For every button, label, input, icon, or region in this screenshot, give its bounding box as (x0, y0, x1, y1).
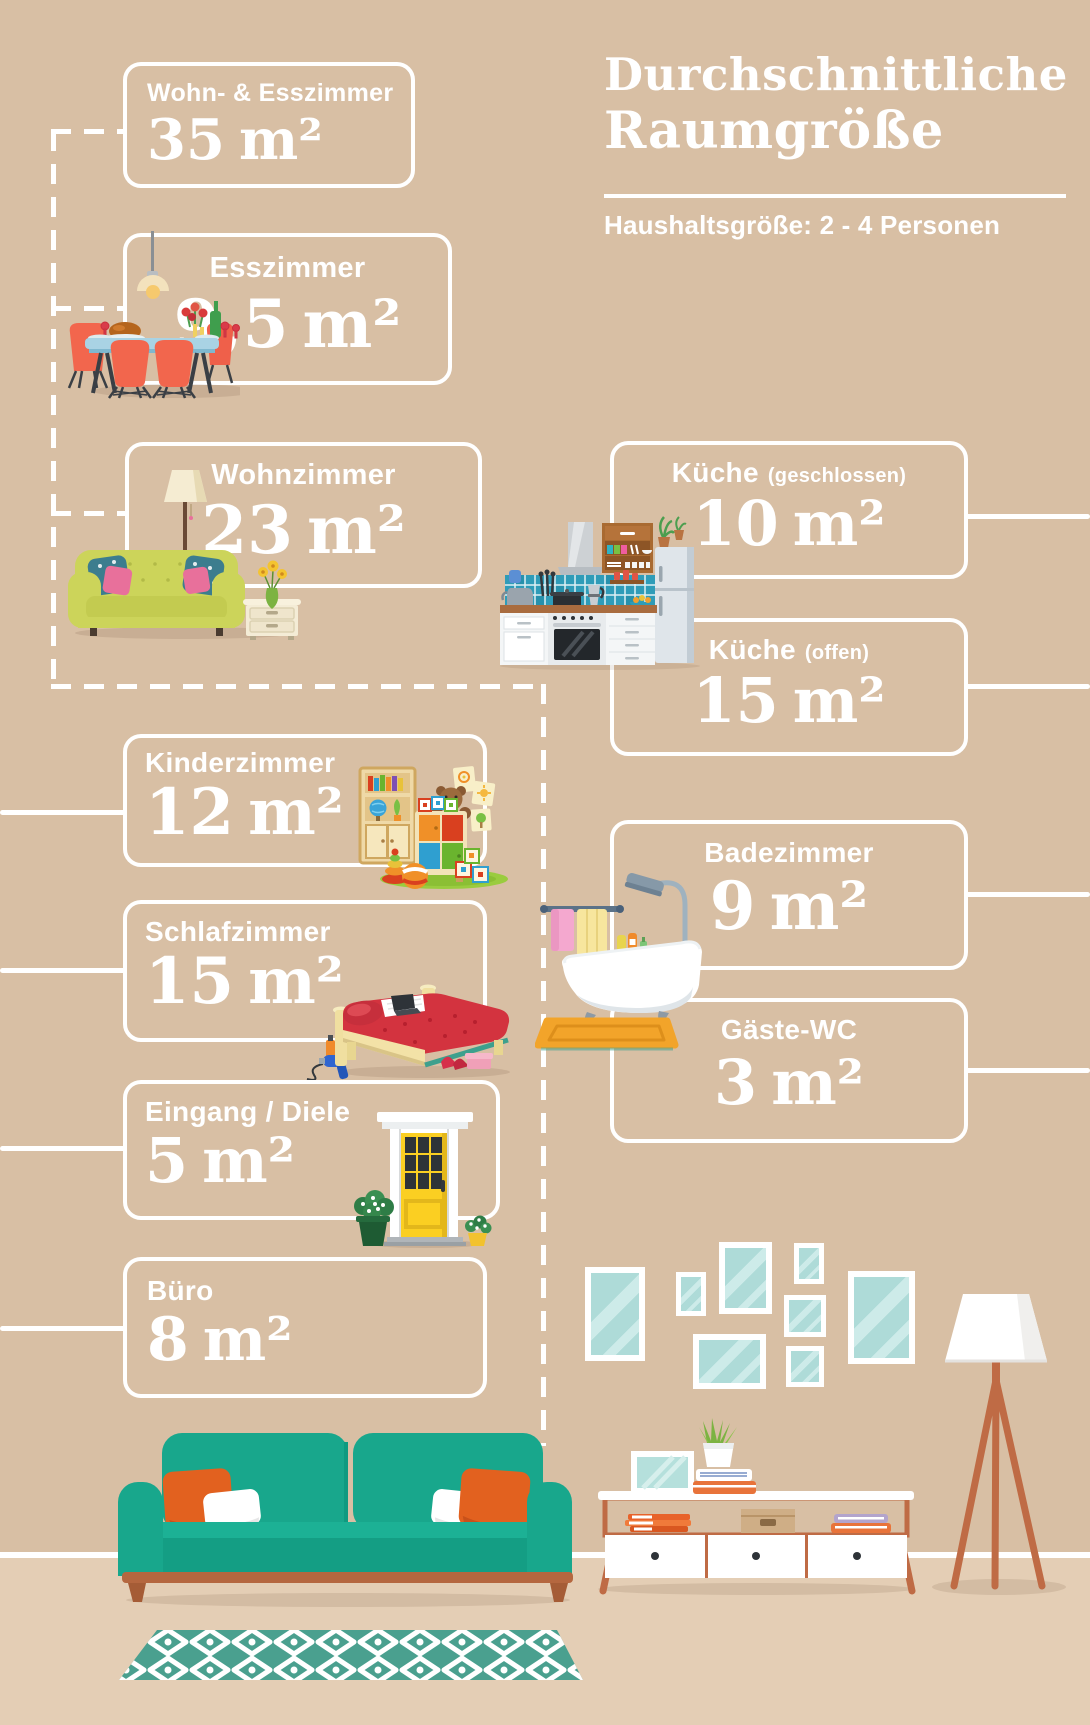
entrance-door-illustration (345, 1108, 495, 1248)
page-title-line2: Raumgröße (604, 102, 1066, 160)
towel-pink (551, 909, 574, 951)
console-picture-frame (631, 1451, 694, 1494)
connector-schlafzimmer (0, 968, 127, 973)
stacked-books (693, 1469, 756, 1494)
flower-pot-right (465, 1216, 492, 1247)
teal-sofa-illustration (110, 1430, 580, 1608)
picture-frame (784, 1295, 826, 1337)
toy-ball (402, 863, 428, 889)
connector-kinderzimmer (0, 810, 127, 815)
picture-frame (719, 1242, 772, 1314)
dashed-connector-wohn (51, 129, 127, 134)
picture-frame (848, 1271, 915, 1364)
kitchen-illustration (495, 510, 705, 670)
shelf-books-left (625, 1514, 691, 1532)
room-label: Küche(geschlossen) (614, 457, 964, 489)
dashed-wall-left (51, 131, 56, 688)
potted-grass (699, 1418, 737, 1467)
title-underline (604, 194, 1066, 198)
bath-mat (538, 1021, 675, 1049)
header: Durchschnittliche Raumgröße Haushaltsgrö… (604, 48, 1066, 241)
plants-on-fridge (658, 517, 686, 548)
room-size-value: 35m² (147, 111, 411, 170)
picture-frame (676, 1272, 706, 1316)
kids-room-illustration (325, 755, 510, 895)
spray-bottle (326, 1035, 335, 1058)
shelf-box (741, 1509, 795, 1533)
connector-buero (0, 1326, 127, 1331)
connector-badezimmer (964, 892, 1090, 897)
subtitle-household-size: Haushaltsgröße: 2 - 4 Personen (604, 210, 1066, 241)
room-label: Büro (147, 1275, 483, 1307)
fridge (655, 547, 694, 663)
shower-head (624, 872, 665, 897)
dining-table-illustration (55, 225, 240, 400)
picture-frame (693, 1334, 766, 1389)
letter-blocks-top (419, 797, 457, 811)
bathroom-illustration (535, 865, 805, 1055)
picture-frame (786, 1346, 824, 1387)
rug-illustration (105, 1628, 590, 1683)
room-size-value: 15m² (614, 668, 964, 733)
bed-illustration (295, 980, 515, 1080)
shoe-box (465, 1053, 493, 1069)
tripod-floor-lamp-illustration (925, 1288, 1075, 1598)
room-label: Wohn- & Esszimmer (147, 79, 411, 108)
room-box-buero: Büro 8m² (123, 1257, 487, 1398)
living-sofa-illustration (60, 460, 305, 640)
page-title-line1: Durchschnittliche (604, 48, 1066, 102)
connector-kueche-geschlossen (964, 514, 1090, 519)
infographic-room-sizes: Durchschnittliche Raumgröße Haushaltsgrö… (0, 0, 1090, 1725)
towel-yellow (577, 909, 607, 957)
picture-frame (585, 1267, 645, 1361)
connector-gaeste-wc (964, 1068, 1090, 1073)
shelf-books-right (831, 1514, 891, 1533)
dashed-wall-right (541, 684, 546, 1446)
connector-kueche-offen (964, 684, 1090, 689)
bathtub (562, 942, 702, 1024)
bookshelf (360, 768, 415, 863)
connector-eingang (0, 1146, 127, 1151)
room-size-value: 8m² (147, 1309, 483, 1372)
upper-cabinet (602, 523, 653, 573)
dashed-wall-middle (51, 684, 546, 689)
room-size-value: 3m² (614, 1050, 964, 1115)
tv-console-illustration (595, 1415, 920, 1600)
picture-frame (794, 1243, 824, 1284)
room-box-wohn-esszimmer: Wohn- & Esszimmer 35m² (123, 62, 415, 188)
stove (548, 613, 606, 665)
